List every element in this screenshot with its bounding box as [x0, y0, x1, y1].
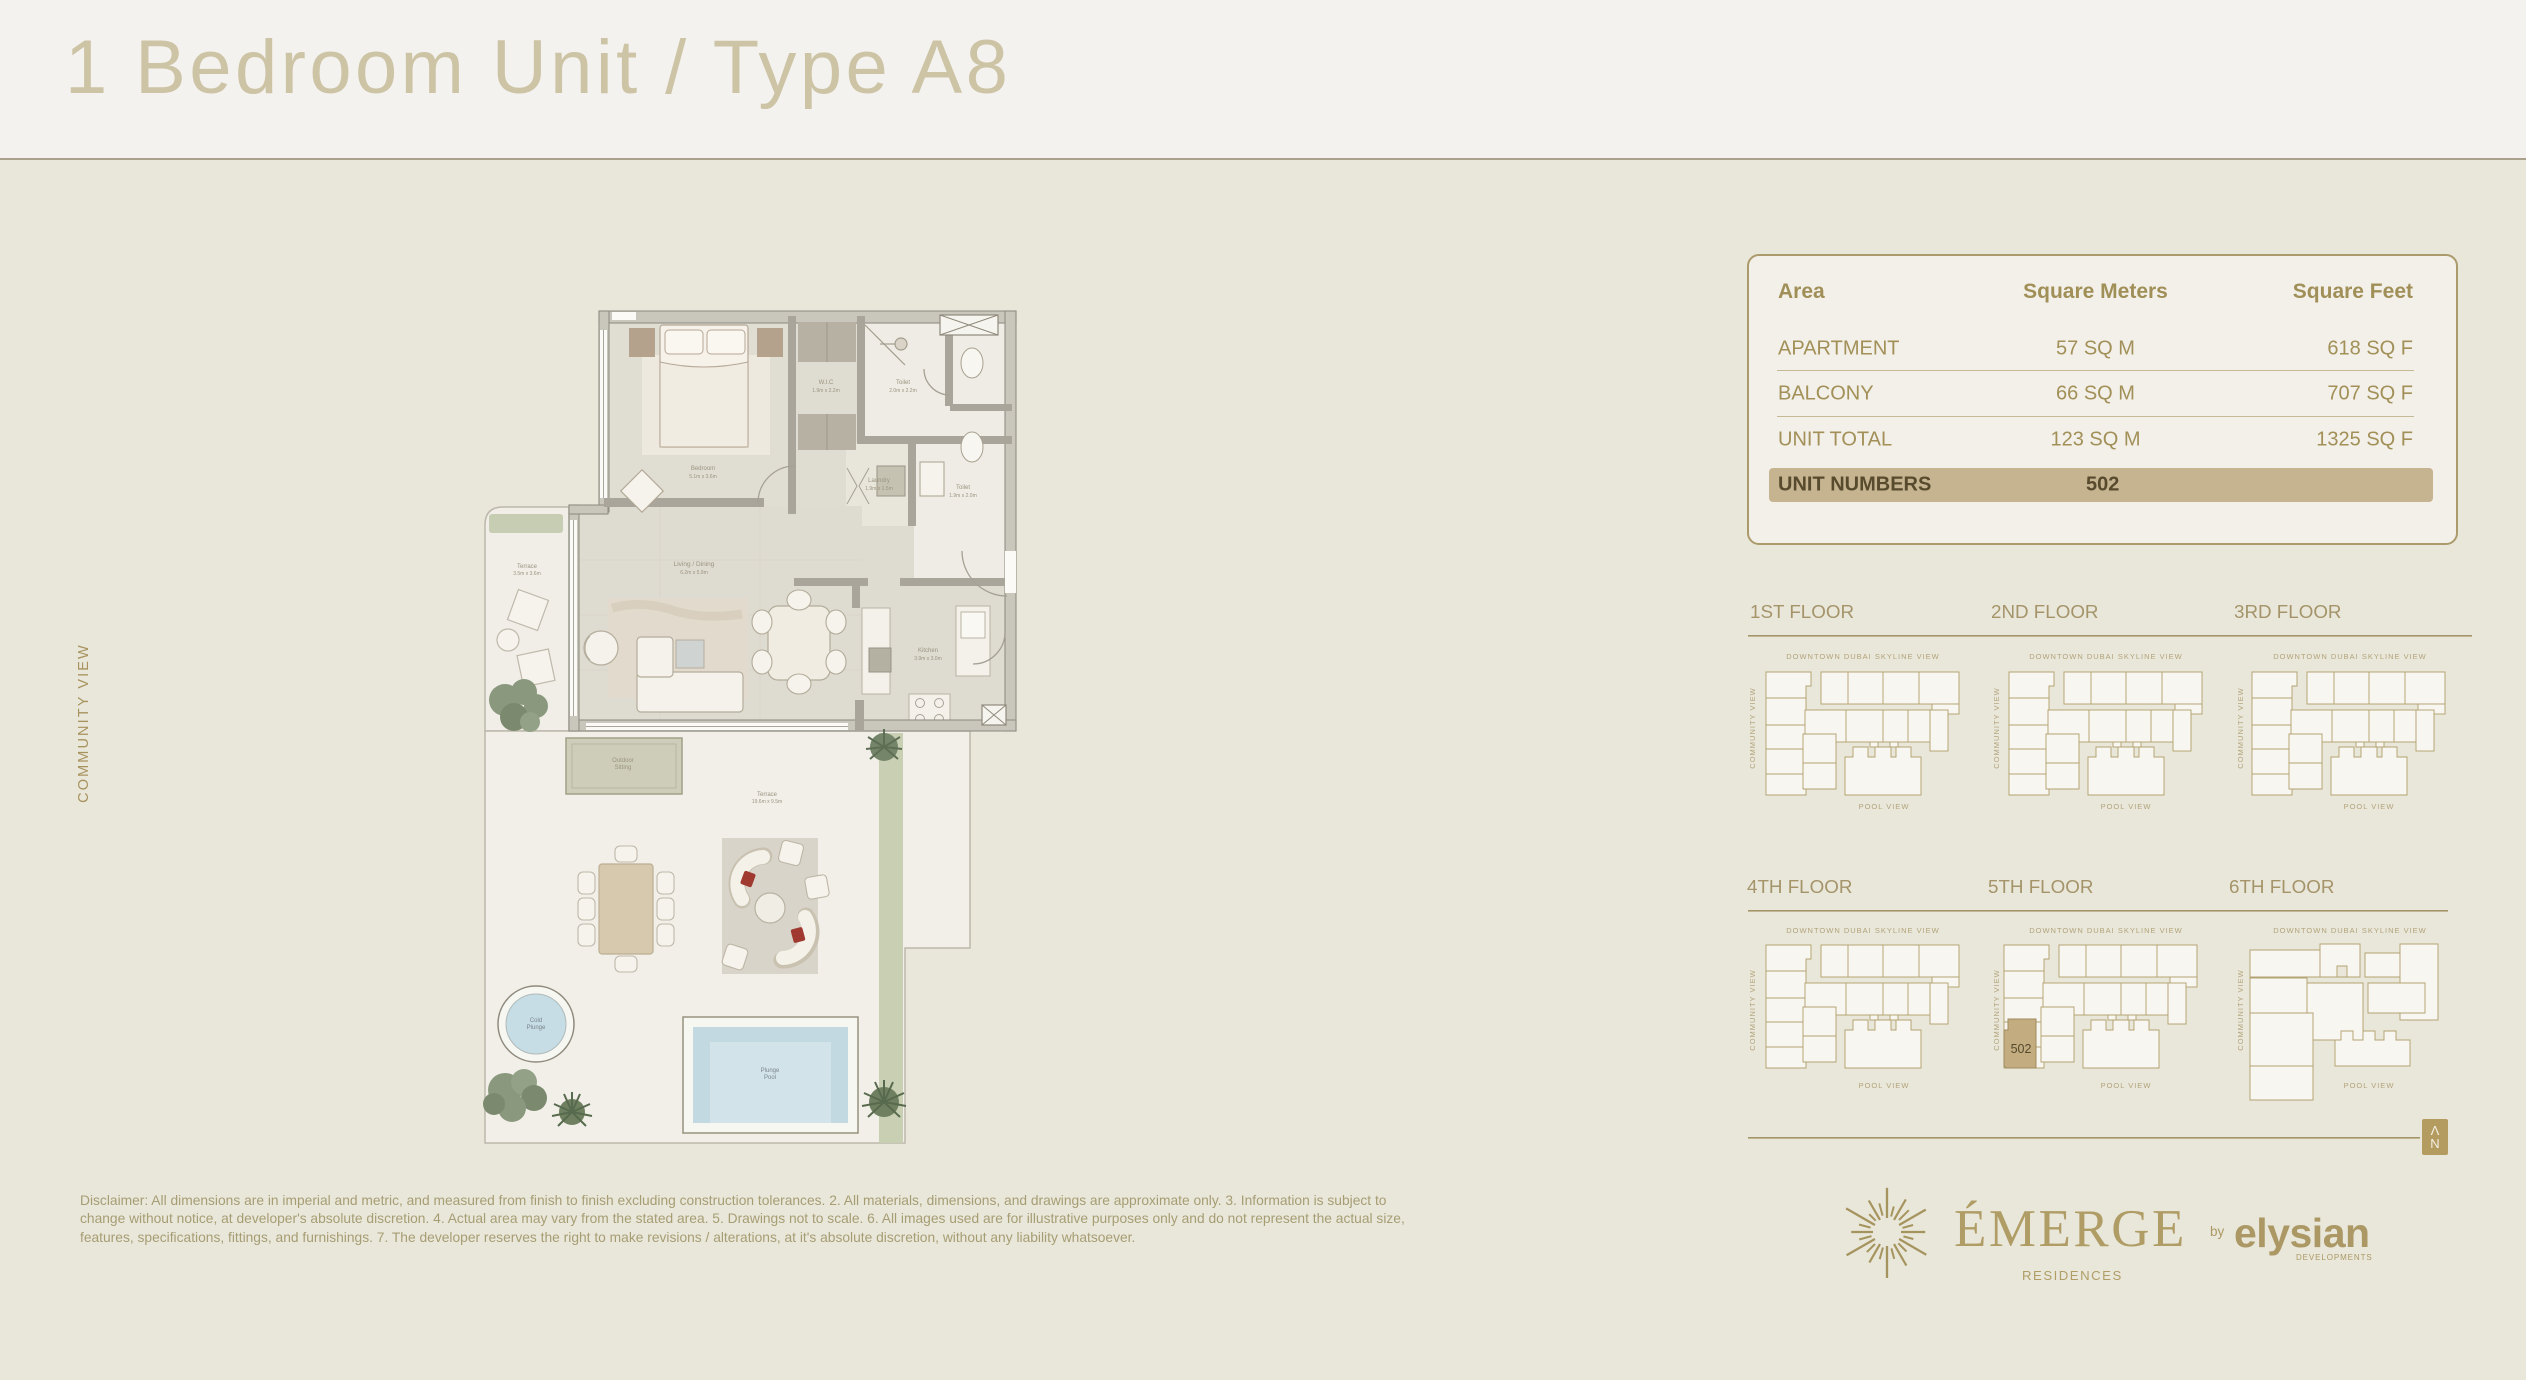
svg-text:19.6m x 9.5m: 19.6m x 9.5m	[752, 799, 782, 805]
svg-text:POOL VIEW: POOL VIEW	[1859, 802, 1910, 811]
svg-text:DOWNTOWN DUBAI SKYLINE VIEW: DOWNTOWN DUBAI SKYLINE VIEW	[1786, 926, 1940, 935]
svg-text:2.0m x 2.2m: 2.0m x 2.2m	[889, 388, 917, 394]
svg-text:Terrace: Terrace	[757, 792, 778, 798]
svg-text:Kitchen: Kitchen	[918, 648, 938, 654]
svg-text:Plunge: Plunge	[527, 1025, 546, 1031]
svg-text:COMMUNITY VIEW: COMMUNITY VIEW	[2236, 687, 2245, 768]
svg-text:COMMUNITY VIEW: COMMUNITY VIEW	[1992, 687, 2001, 768]
svg-text:6TH FLOOR: 6TH FLOOR	[2229, 876, 2334, 897]
svg-text:Sitting: Sitting	[615, 765, 632, 771]
svg-text:DOWNTOWN DUBAI SKYLINE VIEW: DOWNTOWN DUBAI SKYLINE VIEW	[2029, 926, 2183, 935]
svg-text:Bedroom: Bedroom	[691, 466, 715, 472]
svg-text:DOWNTOWN DUBAI SKYLINE VIEW: DOWNTOWN DUBAI SKYLINE VIEW	[1786, 652, 1940, 661]
svg-text:POOL VIEW: POOL VIEW	[2344, 1081, 2395, 1090]
svg-text:Laundry: Laundry	[868, 478, 890, 484]
svg-text:4TH FLOOR: 4TH FLOOR	[1747, 876, 1852, 897]
svg-text:502: 502	[2011, 1042, 2032, 1056]
svg-text:Toilet: Toilet	[956, 485, 970, 491]
svg-text:3RD FLOOR: 3RD FLOOR	[2234, 601, 2342, 622]
svg-text:6.2m x 5.9m: 6.2m x 5.9m	[680, 570, 708, 576]
svg-text:POOL VIEW: POOL VIEW	[1859, 1081, 1910, 1090]
svg-text:Toilet: Toilet	[896, 380, 910, 386]
svg-text:1.9m x 2.2m: 1.9m x 2.2m	[812, 388, 840, 394]
svg-text:Living / Dining: Living / Dining	[674, 561, 715, 568]
svg-text:DOWNTOWN DUBAI SKYLINE VIEW: DOWNTOWN DUBAI SKYLINE VIEW	[2273, 652, 2427, 661]
svg-text:POOL VIEW: POOL VIEW	[2101, 1081, 2152, 1090]
svg-text:1ST FLOOR: 1ST FLOOR	[1750, 601, 1854, 622]
svg-text:1.9m x 1.5m: 1.9m x 1.5m	[865, 486, 893, 492]
svg-text:W.I.C: W.I.C	[819, 380, 834, 386]
svg-text:1.9m x 2.0m: 1.9m x 2.0m	[949, 493, 977, 499]
svg-text:DOWNTOWN DUBAI SKYLINE VIEW: DOWNTOWN DUBAI SKYLINE VIEW	[2273, 926, 2427, 935]
svg-text:Pool: Pool	[764, 1075, 776, 1081]
svg-text:COMMUNITY VIEW: COMMUNITY VIEW	[2236, 969, 2245, 1050]
svg-text:Plunge: Plunge	[761, 1068, 780, 1074]
svg-text:3.9m x 3.0m: 3.9m x 3.0m	[914, 656, 942, 662]
svg-text:POOL VIEW: POOL VIEW	[2101, 802, 2152, 811]
svg-text:COMMUNITY VIEW: COMMUNITY VIEW	[1748, 687, 1757, 768]
svg-text:POOL VIEW: POOL VIEW	[2344, 802, 2395, 811]
svg-text:5TH FLOOR: 5TH FLOOR	[1988, 876, 2093, 897]
svg-text:Outdoor: Outdoor	[612, 758, 634, 764]
svg-text:2ND FLOOR: 2ND FLOOR	[1991, 601, 2099, 622]
svg-text:COMMUNITY VIEW: COMMUNITY VIEW	[1748, 969, 1757, 1050]
svg-text:3.5m x 3.6m: 3.5m x 3.6m	[513, 571, 541, 577]
svg-text:5.1m x 3.6m: 5.1m x 3.6m	[689, 474, 717, 480]
svg-text:Terrace: Terrace	[517, 564, 538, 570]
svg-text:Cold: Cold	[530, 1018, 542, 1024]
svg-text:COMMUNITY VIEW: COMMUNITY VIEW	[1992, 969, 2001, 1050]
svg-text:DOWNTOWN DUBAI SKYLINE VIEW: DOWNTOWN DUBAI SKYLINE VIEW	[2029, 652, 2183, 661]
